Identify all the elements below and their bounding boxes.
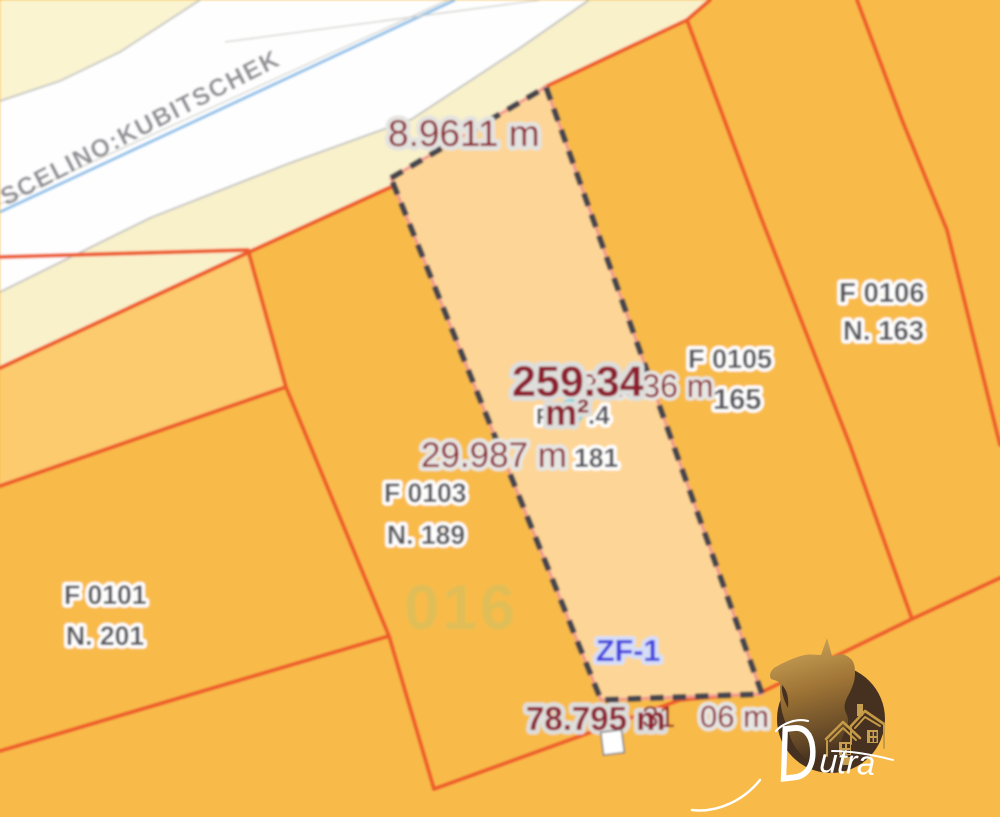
svg-text:N. 163: N. 163 [843, 315, 924, 346]
svg-text:ZF-1: ZF-1 [596, 634, 660, 668]
svg-text:N. 189: N. 189 [387, 520, 465, 550]
svg-text:m²: m² [545, 392, 589, 433]
svg-text:29.987 m: 29.987 m [421, 436, 567, 475]
svg-text:181: 181 [574, 443, 618, 473]
svg-text:F 0106: F 0106 [839, 277, 925, 308]
svg-text:06 m: 06 m [700, 699, 769, 734]
svg-text:N. 201: N. 201 [66, 621, 144, 651]
svg-text:F 0103: F 0103 [384, 478, 467, 508]
svg-text:016: 016 [404, 573, 518, 643]
svg-text:31: 31 [642, 701, 675, 734]
svg-text:utra: utra [819, 742, 877, 783]
svg-text:8.9611 m: 8.9611 m [388, 113, 540, 154]
svg-text:165: 165 [713, 384, 761, 416]
svg-text:F 0101: F 0101 [64, 580, 147, 610]
